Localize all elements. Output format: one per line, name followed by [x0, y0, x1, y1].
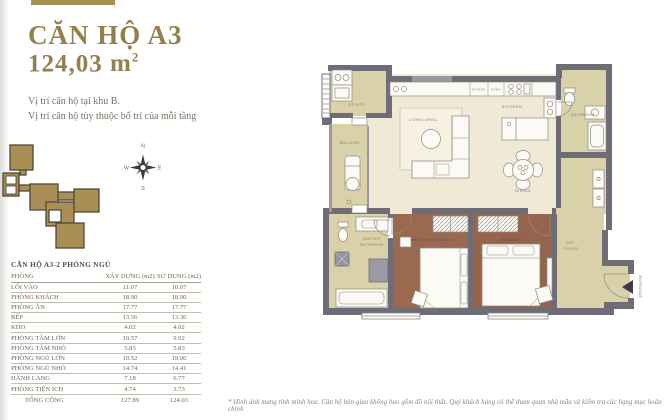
site-building [74, 189, 99, 212]
entrance-nook-floor [604, 266, 630, 302]
foyer-passage-floor [556, 208, 606, 214]
shower [335, 252, 349, 266]
table-cell: 10.07 [157, 283, 201, 293]
table-cell: TỔNG CỘNG [11, 395, 103, 405]
coffee-table [422, 130, 441, 149]
foyer-label-1: ENT. [566, 241, 575, 245]
table-cell: 4.02 [157, 323, 201, 333]
fridge-label: FRIDGE [472, 88, 486, 92]
master-bathroom-label-2: BATHROOM [360, 243, 383, 247]
area-table: CĂN HỘ A3-2 PHÒNG NGỦ PHÒNGXÂY DỰNG (m2)… [11, 260, 201, 405]
table-cell: 4.02 [103, 323, 157, 333]
foyer-label-2: FOYER [564, 247, 578, 251]
table-cell: 124.03 [157, 395, 201, 405]
master-bedroom-label: MASTER BEDROOM [411, 238, 449, 242]
table-cell: 14.41 [157, 364, 201, 374]
site-building [10, 145, 33, 170]
table-cell: 3.73 [157, 384, 201, 394]
entrance-label: ENTRANCE [638, 276, 642, 299]
table-cell: PHÒNG [11, 272, 103, 283]
master-bed [420, 248, 468, 308]
utility-label: UTILITY [349, 103, 366, 107]
site-connector [19, 185, 31, 191]
site-building [56, 223, 84, 248]
location-note: Vị trí căn hộ tại khu B. Vị trí căn hộ t… [28, 94, 196, 124]
kitchen-island [502, 118, 548, 140]
table-cell: 7.18 [103, 374, 157, 384]
location-line-2: Vị trí căn hộ tùy thuộc bố trí của mỗi t… [28, 109, 196, 124]
table-cell: 6.77 [157, 374, 201, 384]
table-cell: SỬ DỤNG (m2) [157, 272, 201, 283]
apartment-area: 124,03 m2 [28, 50, 139, 78]
table-cell: 5.83 [157, 344, 201, 354]
table-cell: 5.83 [103, 344, 157, 354]
kitchen-sink-unit [544, 98, 556, 118]
table-cell: XÂY DỰNG (m2) [103, 272, 157, 283]
table-cell: 13.56 [103, 313, 157, 323]
table-cell: 11.07 [103, 283, 157, 293]
master-toilet-tank [338, 222, 348, 227]
oven-label: OVEN [491, 88, 501, 92]
disclaimer-footnote: * Hình ảnh mang tính minh họa. Căn hộ bà… [228, 399, 666, 413]
brochure-page: CĂN HỘ A3 124,03 m2 Vị trí căn hộ tại kh… [0, 0, 670, 420]
range-hood [412, 76, 452, 82]
table-cell: 19.06 [157, 354, 201, 364]
utility-appliances [332, 70, 352, 101]
accent-bar [31, 0, 115, 5]
area-table-title: CĂN HỘ A3-2 PHÒNG NGỦ [11, 260, 201, 269]
balcony-label: BALCONY [340, 141, 361, 145]
site-unit-marker [49, 210, 61, 222]
site-unit-cell [6, 186, 16, 194]
table-cell: PHÒNG TIỆN ÍCH [11, 384, 103, 394]
kitchen-label: KITCHEN [502, 105, 522, 109]
master-bathroom-label-1: MASTER [363, 237, 380, 241]
site-unit-cell [6, 176, 16, 184]
toilet-bowl [565, 93, 575, 106]
table-cell: PHÒNG NGỦ LỚN [11, 354, 103, 364]
area-unit: m2 [110, 50, 139, 77]
table-cell: PHÒNG TẮM NHỎ [11, 344, 103, 354]
table-cell: LỐI VÀO [11, 283, 103, 293]
site-plan-minimap [2, 140, 116, 254]
area-table-grid: PHÒNGXÂY DỰNG (m2)SỬ DỤNG (m2)LỐI VÀO11.… [11, 272, 201, 405]
apartment-title: CĂN HỘ A3 [28, 20, 183, 51]
location-line-1: Vị trí căn hộ tại khu B. [28, 94, 196, 109]
compass-n: N [141, 144, 145, 150]
table-cell: BẾP [11, 313, 103, 323]
table-cell: 9.92 [157, 333, 201, 343]
bed [482, 244, 540, 306]
floor-plan: FRIDGE OVEN [316, 56, 656, 336]
compass-s: S [141, 186, 145, 192]
nightstand [400, 237, 411, 247]
table-cell: PHÒNG ĂN [11, 303, 103, 313]
table-cell: 4.74 [103, 384, 157, 394]
table-cell: 17.77 [103, 303, 157, 313]
utility-vent-wall [322, 74, 330, 118]
compass-e: E [158, 165, 162, 171]
compass-w: W [124, 165, 129, 171]
table-cell: PHÒNG TẮM LỚN [11, 333, 103, 343]
bedroom-label: BEDROOM [502, 238, 522, 242]
balcony-outer-wall [329, 124, 332, 212]
area-value: 124,03 [28, 50, 103, 77]
compass-icon: N S W E [124, 140, 162, 195]
table-cell: 10.57 [103, 333, 157, 343]
table-cell: PHÒNG KHÁCH [11, 293, 103, 303]
storage-closet [369, 259, 388, 282]
foyer-floor [557, 214, 604, 308]
table-cell: HÀNH LANG [11, 374, 103, 384]
balcony-glass-wall [367, 126, 369, 208]
dining-label: DINING [515, 189, 531, 193]
table-cell: 19.52 [103, 354, 157, 364]
living-area-label: LIVING AREA [409, 118, 437, 122]
table-cell: 18.90 [103, 293, 157, 303]
table-cell: 18.90 [157, 293, 201, 303]
table-cell: PHÒNG NGỦ NHỎ [11, 364, 103, 374]
table-cell: 13.36 [157, 313, 201, 323]
table-cell: 17.77 [157, 303, 201, 313]
table-cell: KHO [11, 323, 103, 333]
table-cell: 14.74 [103, 364, 157, 374]
master-toilet-bowl [339, 229, 348, 242]
master-sink-counter [356, 217, 388, 231]
bathroom-label: BATHROOM [571, 113, 594, 117]
table-cell: 127.89 [103, 395, 157, 405]
